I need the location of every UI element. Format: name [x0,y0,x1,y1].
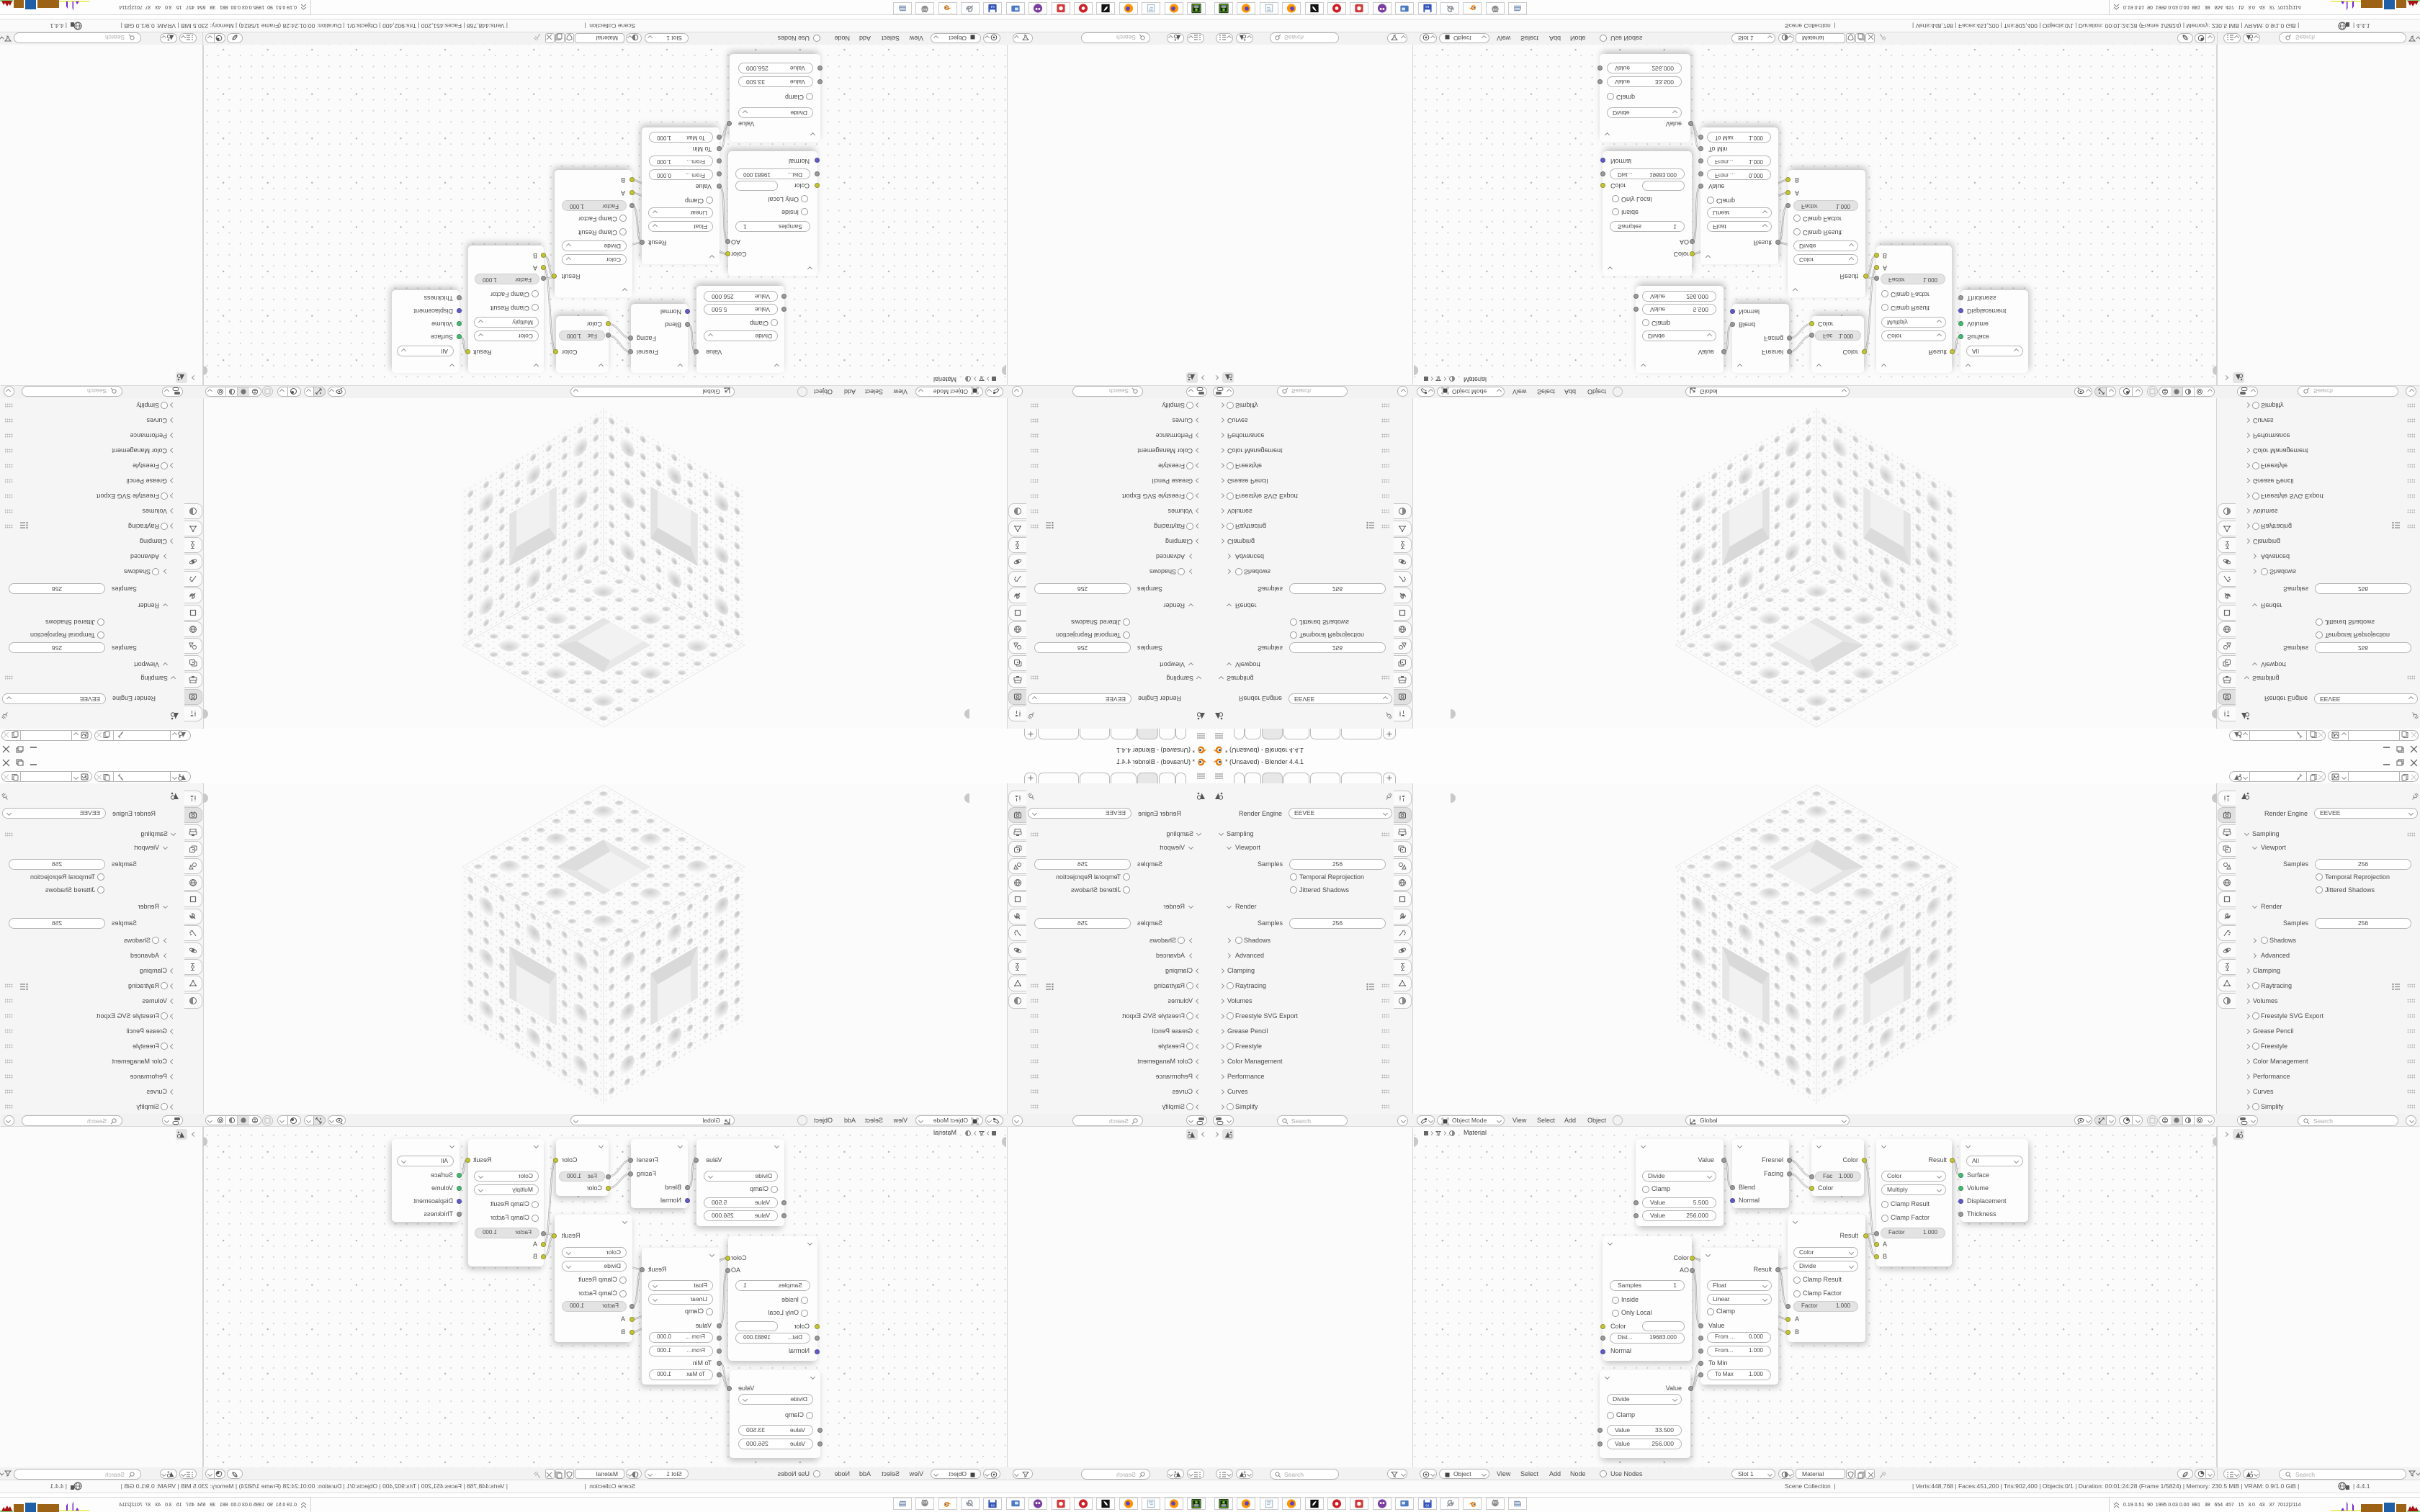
svg-text:64: 64 [991,1503,995,1507]
svg-text:64: 64 [1425,1503,1430,1507]
svg-text:64: 64 [991,5,995,9]
svg-text:64: 64 [1425,5,1430,9]
